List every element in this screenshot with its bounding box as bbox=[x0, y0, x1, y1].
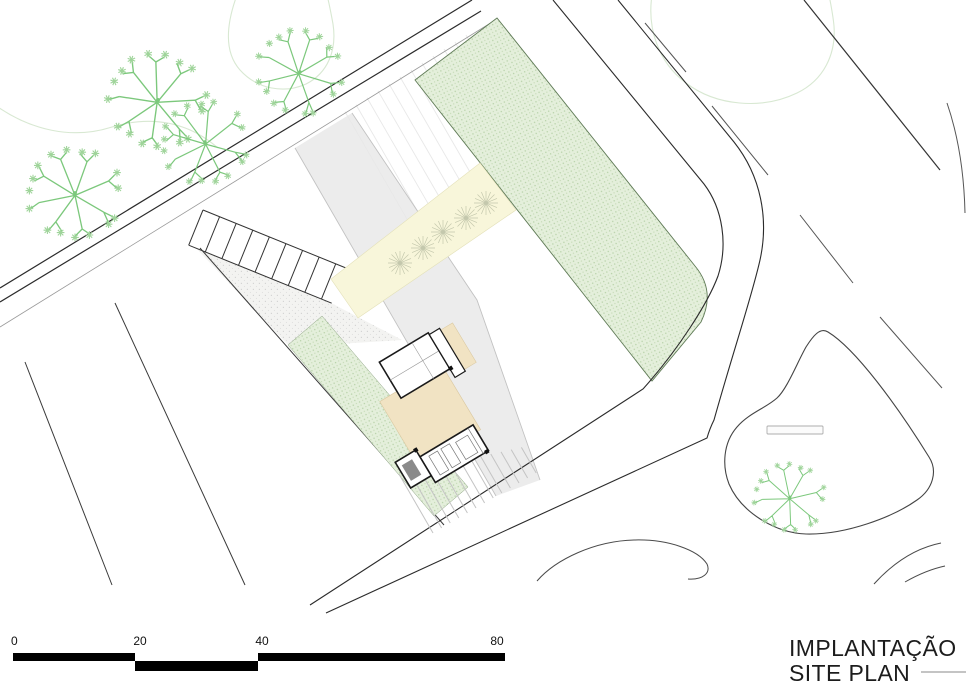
avenue-dashed-lines bbox=[645, 23, 965, 388]
scale-label-20: 20 bbox=[133, 634, 147, 648]
scale-label-80: 80 bbox=[490, 634, 504, 648]
star-tree-icon bbox=[431, 220, 455, 244]
landscape-island bbox=[725, 331, 934, 534]
landscape-curves bbox=[537, 540, 945, 584]
star-tree-icon bbox=[388, 251, 412, 275]
scale-bar-segment-3 bbox=[258, 653, 505, 661]
sketch-tree-icon bbox=[92, 36, 220, 164]
star-tree-icon bbox=[474, 191, 498, 215]
site-plan-page: 0 20 40 80 IMPLANTAÇÃO SITE PLAN bbox=[0, 0, 966, 693]
sketch-tree-icon bbox=[150, 89, 258, 196]
scale-label-40: 40 bbox=[255, 634, 269, 648]
bench-icon bbox=[767, 426, 823, 434]
star-tree-icon bbox=[454, 206, 478, 230]
sketch-tree-icon bbox=[26, 146, 122, 241]
scale-label-0: 0 bbox=[11, 634, 18, 648]
title-line-1: IMPLANTAÇÃO bbox=[789, 635, 957, 661]
site-plan-canvas: 0 20 40 80 IMPLANTAÇÃO SITE PLAN bbox=[0, 0, 966, 693]
title-line-2: SITE PLAN bbox=[789, 660, 910, 686]
scale-bar-segment-1 bbox=[13, 653, 135, 661]
scale-bar: 0 20 40 80 bbox=[11, 634, 505, 671]
star-tree-icon bbox=[411, 236, 435, 260]
avenue-edge-line bbox=[804, 0, 940, 170]
title-block: IMPLANTAÇÃO SITE PLAN bbox=[789, 635, 966, 686]
scale-bar-segment-2 bbox=[135, 661, 258, 671]
plot-lines bbox=[25, 303, 245, 585]
sketch-tree-icon bbox=[747, 456, 831, 539]
